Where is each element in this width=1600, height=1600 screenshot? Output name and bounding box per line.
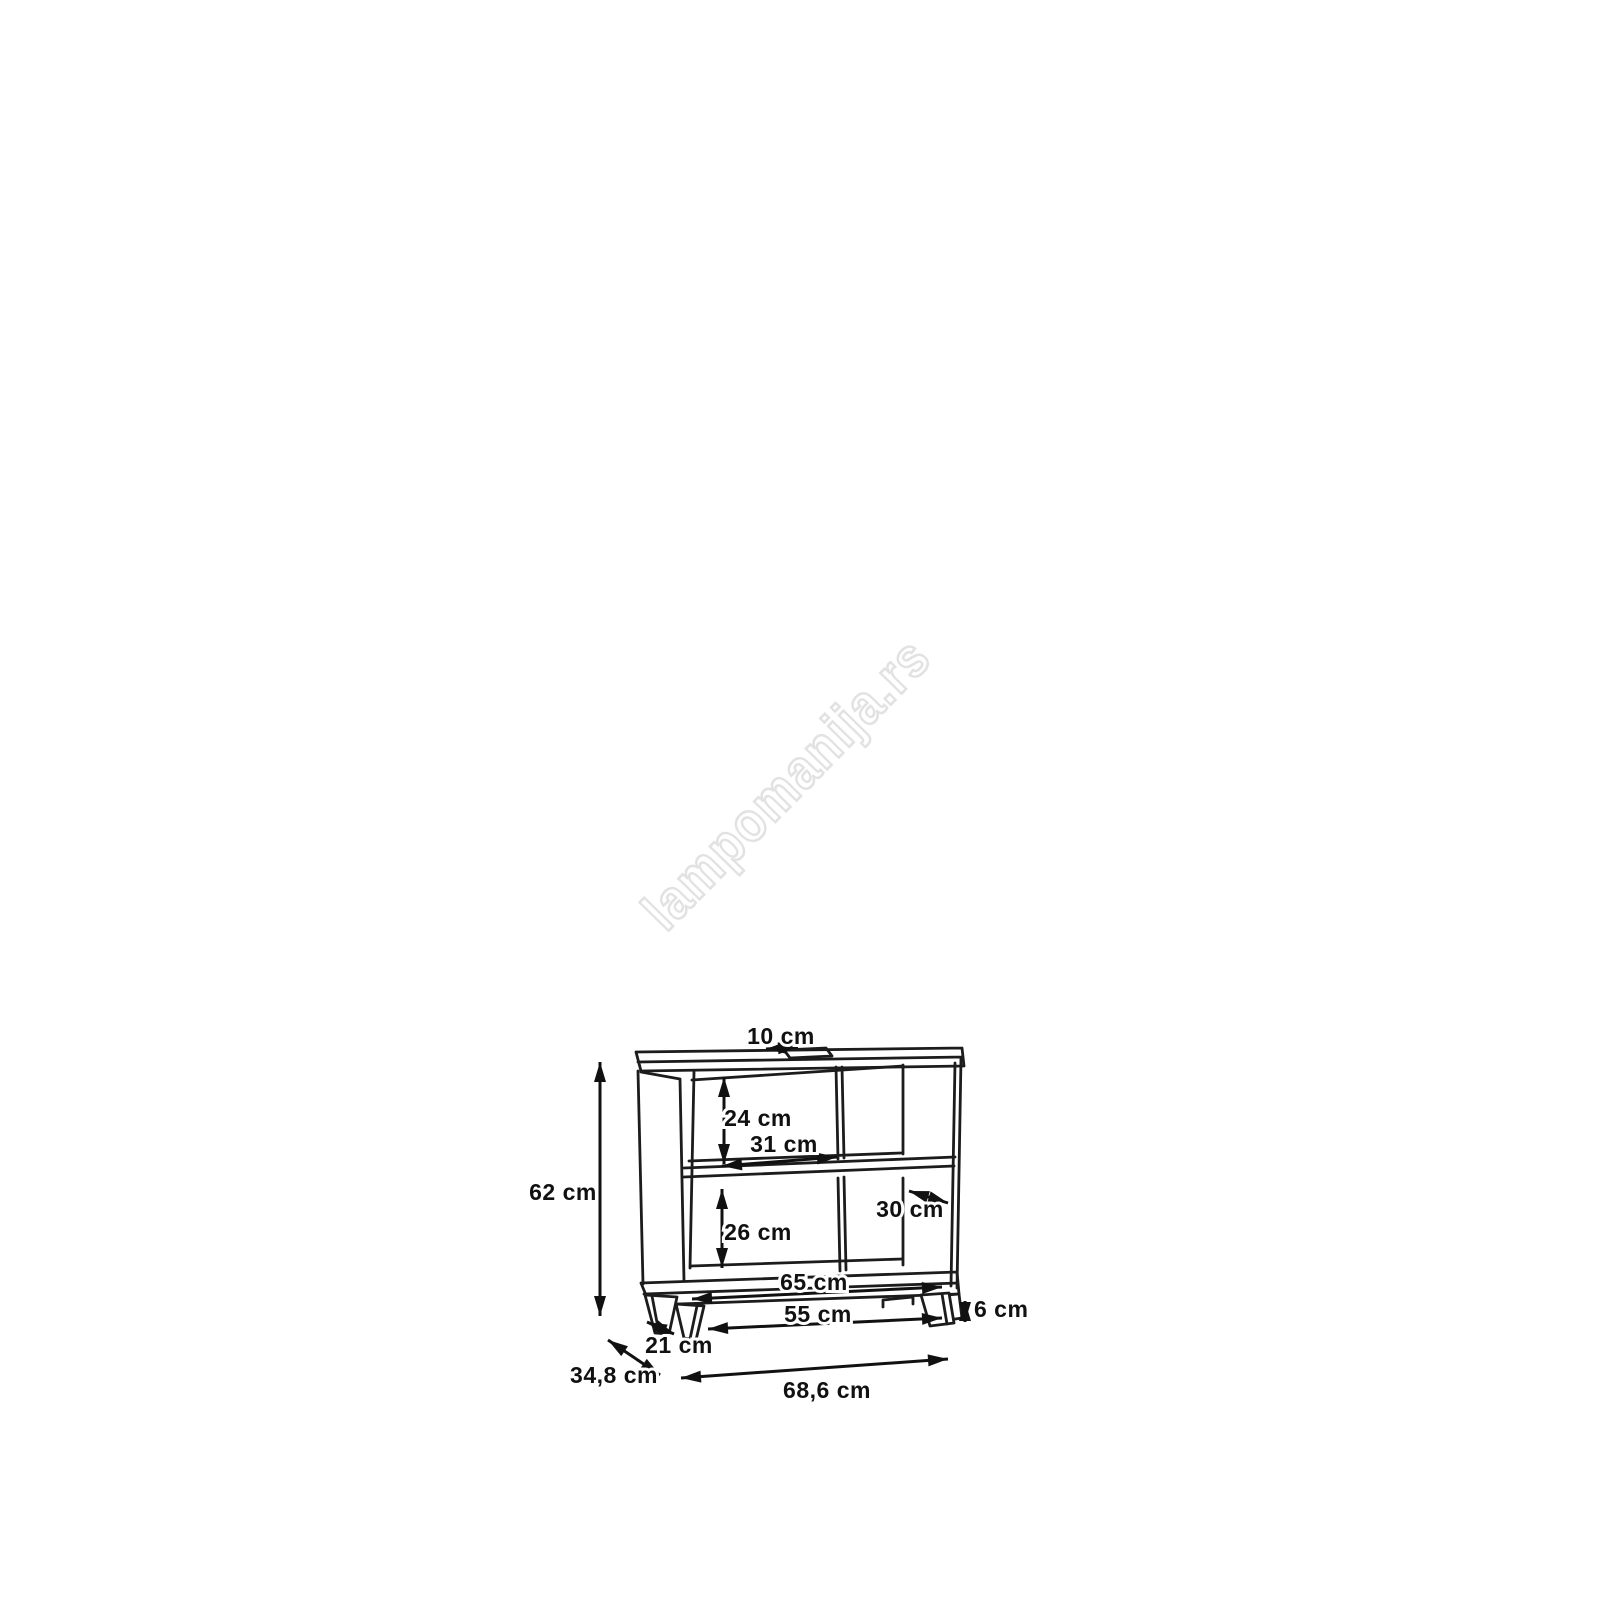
label-base-width: 55 cm bbox=[784, 1301, 852, 1327]
dim-arrow-overall-width bbox=[681, 1359, 948, 1378]
diagram-canvas: lampomanija.rs bbox=[0, 0, 1600, 1600]
label-inner-bottom-width: 65 cm bbox=[780, 1269, 848, 1295]
watermark: lampomanija.rs bbox=[630, 625, 943, 942]
plinth-notch bbox=[883, 1297, 913, 1307]
cabinet-dimension-diagram: lampomanija.rs bbox=[0, 0, 1600, 1600]
label-base-height: 6 cm bbox=[974, 1296, 1028, 1322]
center-divider bbox=[836, 1067, 846, 1271]
right-side-panel bbox=[951, 1058, 961, 1288]
label-upper-compartment-width: 31 cm bbox=[750, 1131, 818, 1157]
label-upper-compartment-height: 24 cm bbox=[724, 1105, 792, 1131]
label-foot-depth: 21 cm bbox=[645, 1332, 713, 1358]
label-overall-depth: 34,8 cm bbox=[570, 1362, 658, 1388]
label-lower-compartment-height: 26 cm bbox=[724, 1219, 792, 1245]
front-right-foot bbox=[921, 1293, 954, 1326]
label-top-cutout-width: 10 cm bbox=[747, 1023, 815, 1049]
label-overall-width: 68,6 cm bbox=[783, 1377, 871, 1403]
label-compartment-depth: 30 cm bbox=[876, 1196, 944, 1222]
label-overall-height: 62 cm bbox=[529, 1179, 597, 1205]
top-panel bbox=[636, 1048, 964, 1071]
